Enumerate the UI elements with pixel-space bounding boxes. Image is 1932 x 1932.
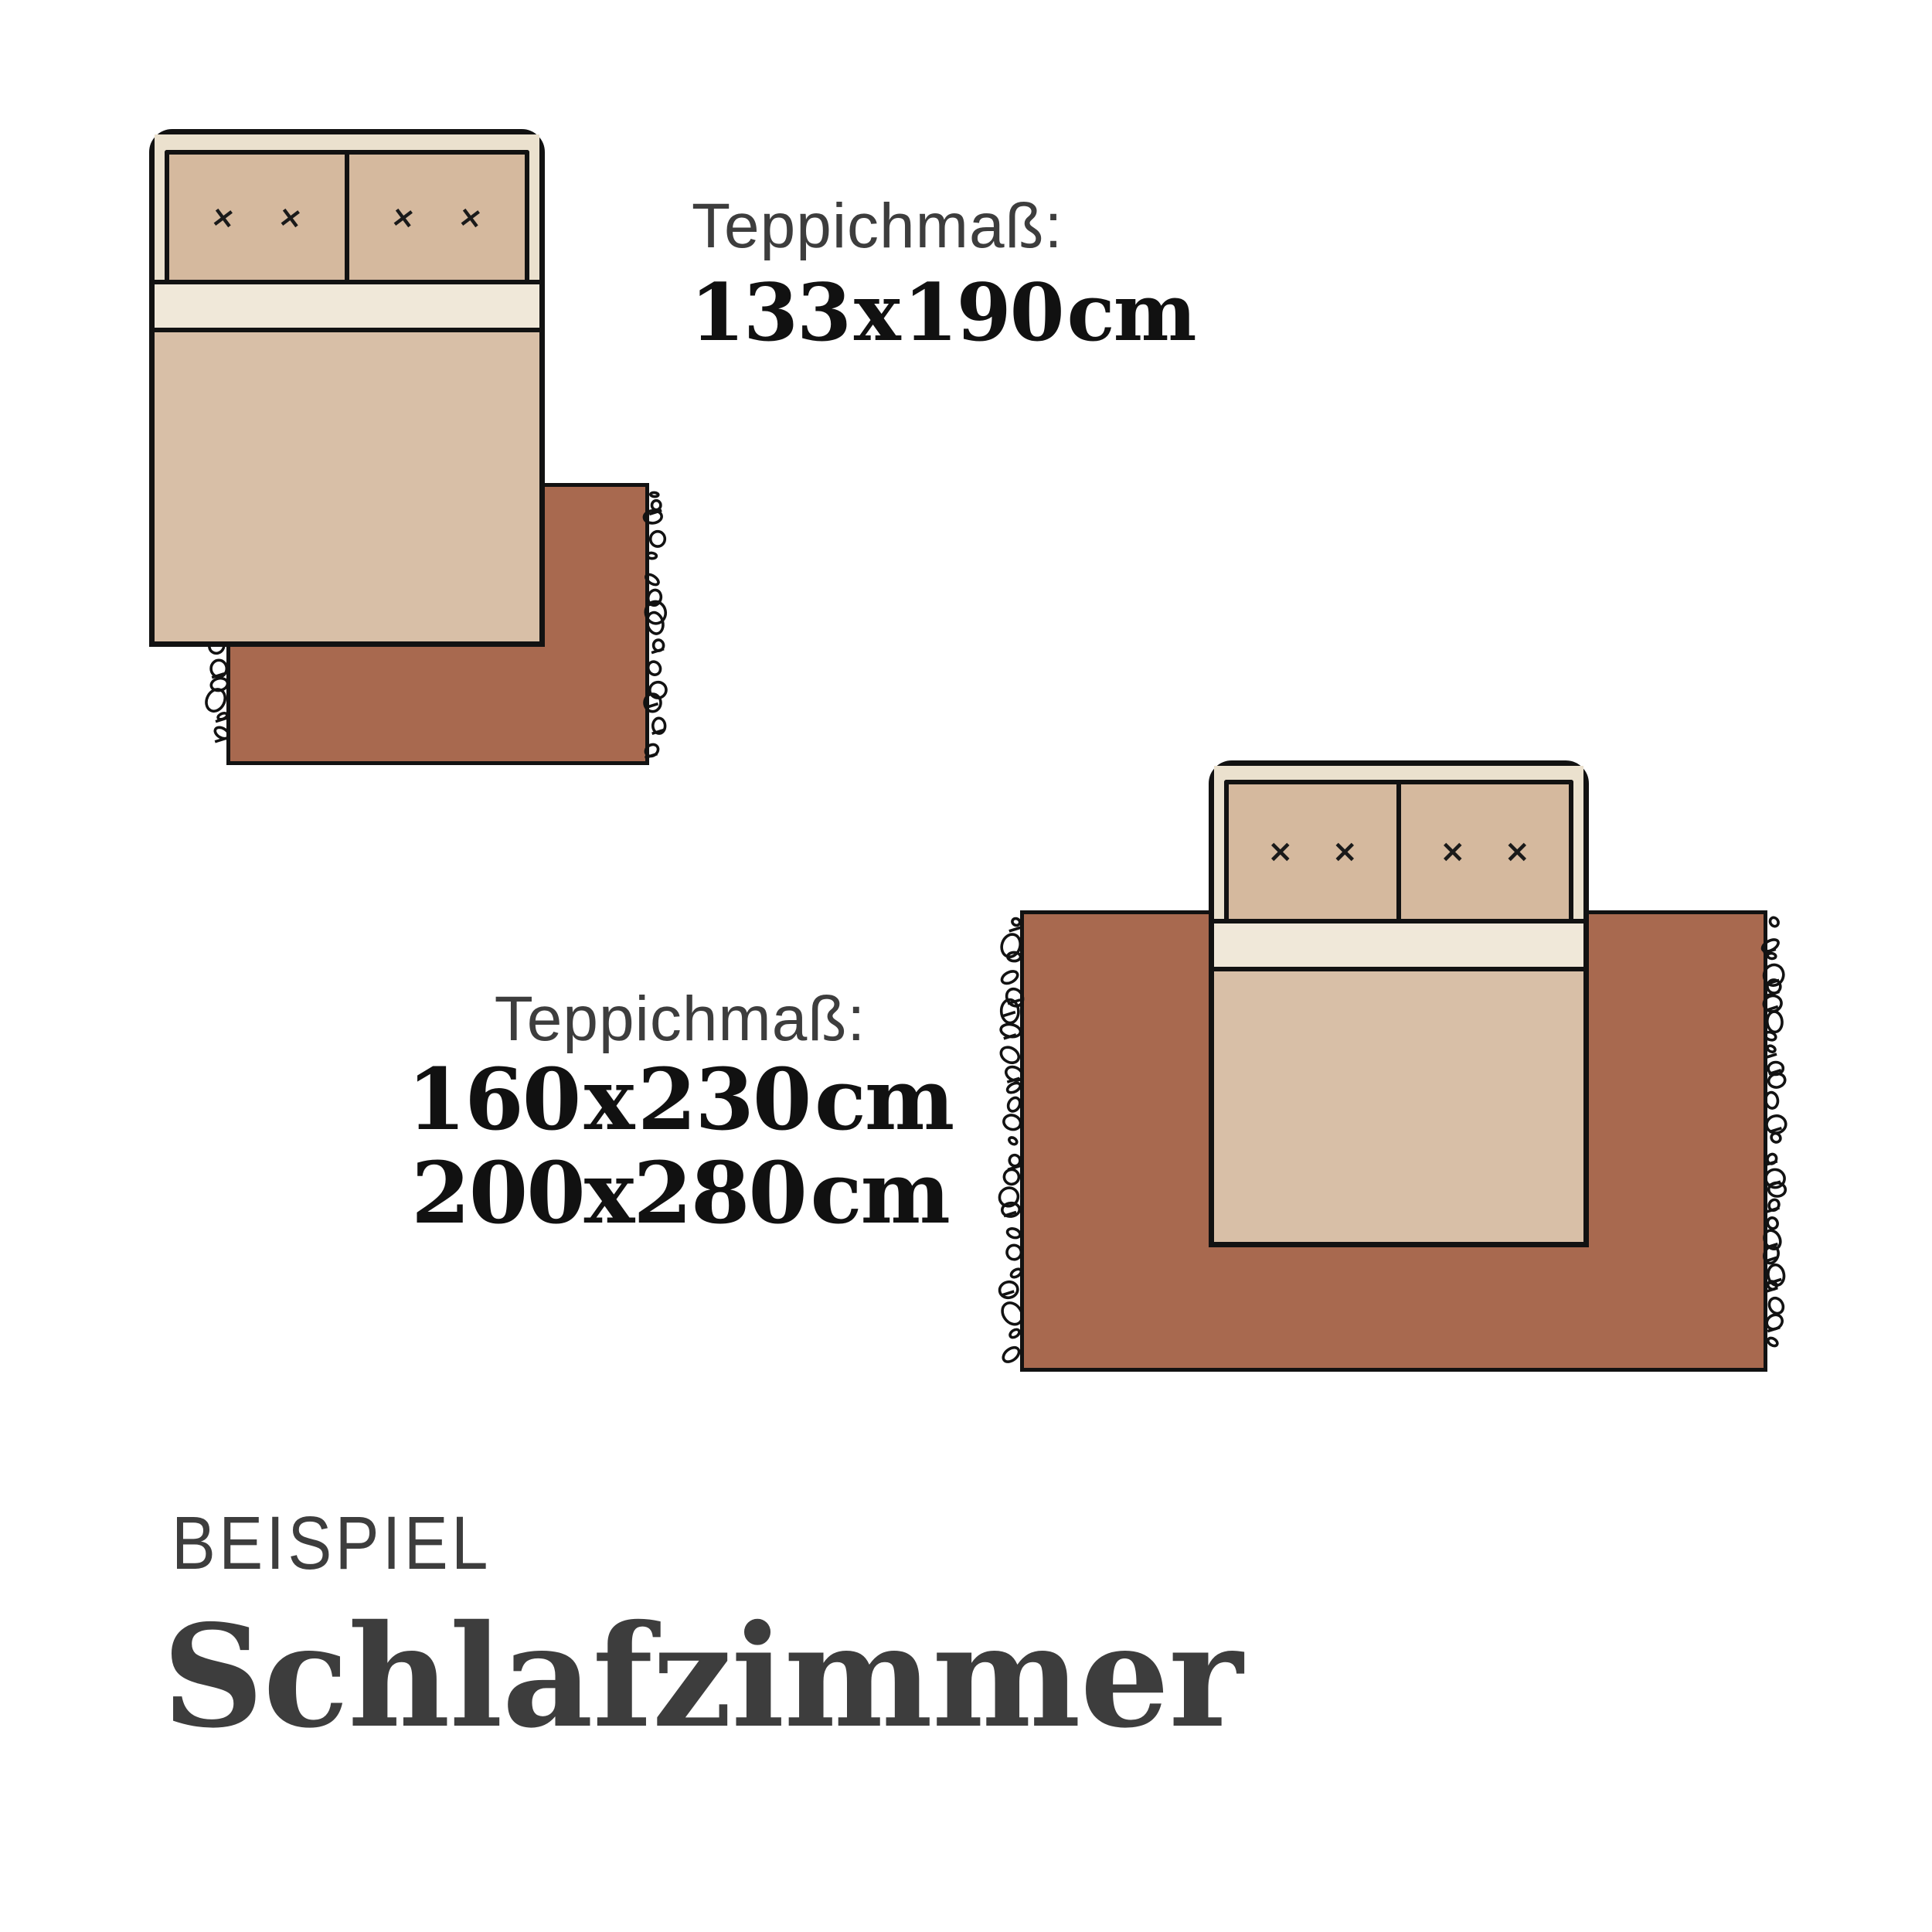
sheet-band (1214, 919, 1583, 971)
stitch-cross-icon: × (1267, 836, 1294, 867)
rug-size-value-2b: 200x280 cm (294, 1146, 1066, 1240)
headboard: × × × × (1214, 766, 1583, 919)
bed-double-2: × × × × (1209, 760, 1589, 1247)
headboard: × × × × (155, 134, 539, 280)
example-kicker: BEISPIEL (172, 1505, 492, 1580)
rug-fringe-right-icon (1764, 913, 1784, 1368)
rug-size-label-2: Teppichmaß: (294, 988, 1066, 1051)
stitch-cross-icon: × (1504, 836, 1530, 867)
rug-size-value-2a: 160 x 230 cm (294, 1053, 1066, 1146)
stitch-cross-icon: × (1440, 836, 1466, 867)
rug-size-block-2: Teppichmaß: 160 x 230 cm 200x280 cm (294, 988, 1066, 1240)
blanket (155, 332, 539, 641)
blanket (1214, 971, 1583, 1242)
pillow-left: × × (1229, 784, 1401, 919)
stitch-cross-icon: × (276, 201, 304, 233)
stitch-cross-icon: × (456, 201, 485, 233)
pillow-right: × × (1401, 784, 1569, 919)
sheet-band (155, 280, 539, 332)
rug-size-label-1: Teppichmaß: (692, 195, 1063, 258)
rug-size-values-2: 160 x 230 cm 200x280 cm (294, 1053, 1066, 1240)
stitch-cross-icon: × (389, 201, 418, 233)
infographic-canvas: × × × × Teppichmaß: 133 x 190 cm × × (0, 0, 1932, 1932)
stitch-cross-icon: × (1332, 836, 1358, 867)
rug-fringe-right-icon (646, 485, 666, 761)
stitch-cross-icon: × (209, 201, 238, 233)
pillow-box: × × × × (1224, 780, 1573, 919)
page-title: Schlafzimmer (162, 1606, 1242, 1747)
bed-double-1: × × × × (149, 129, 545, 647)
rug-size-value-1: 133 x 190 cm (690, 274, 1196, 352)
pillow-left: × × (169, 155, 349, 280)
pillow-box: × × × × (165, 150, 529, 280)
pillow-right: × × (349, 155, 525, 280)
